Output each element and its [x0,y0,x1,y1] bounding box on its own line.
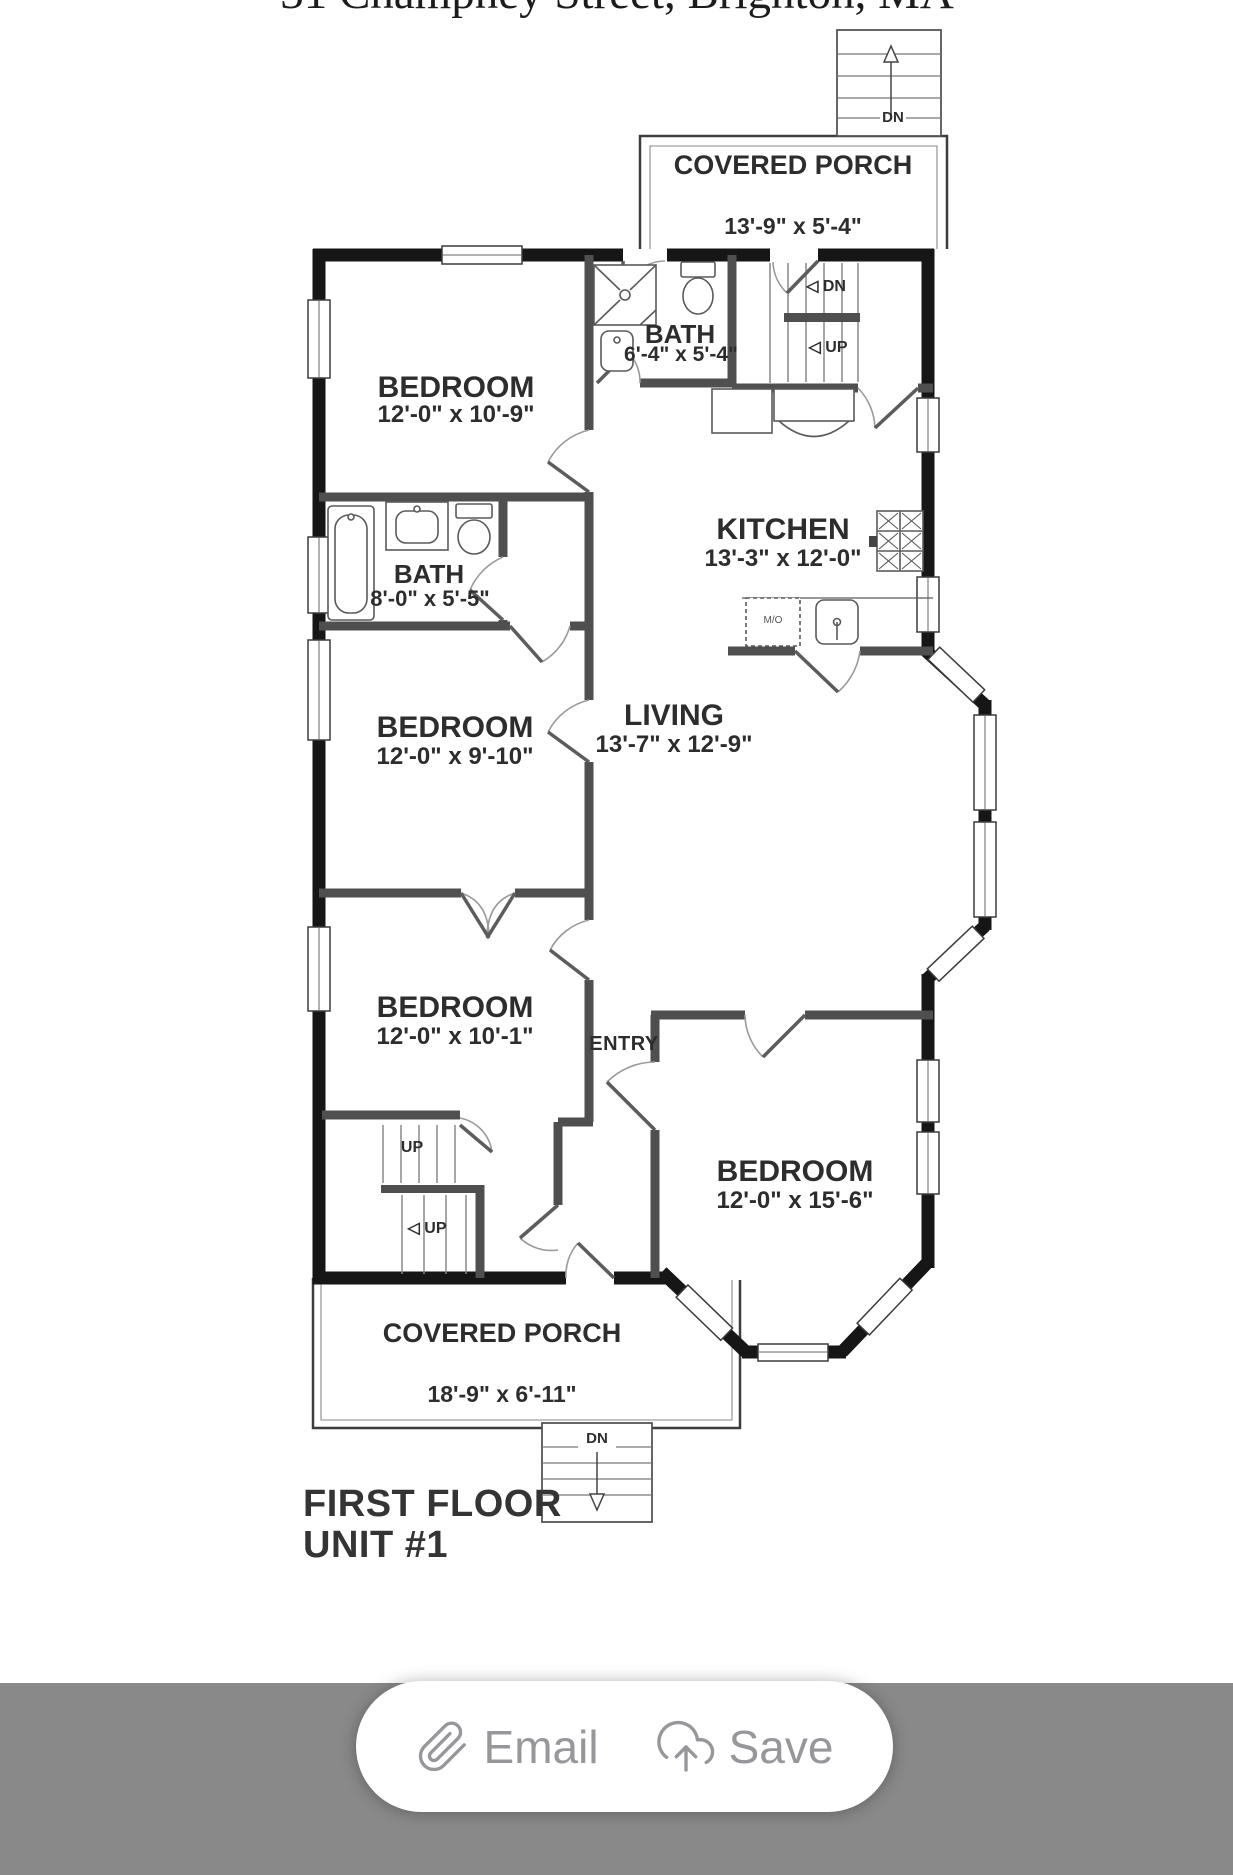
stair-label-bottom-dn: DN [586,1431,608,1447]
email-button[interactable]: Email [416,1720,599,1774]
room-label-living: LIVING [624,700,724,732]
stair-label-bottom-up-1: UP [401,1140,423,1157]
cloud-upload-icon [657,1718,715,1776]
room-dims-covered-porch-bottom: 18'-9" x 6'-11" [427,1382,576,1406]
stair-label-interior-up: ◁ UP [809,340,848,357]
room-label-bedroom-1: BEDROOM [378,372,535,404]
floor-title: FIRST FLOOR UNIT #1 [303,1484,562,1566]
stair-label-bottom-up-2: ◁ UP [408,1221,447,1238]
room-dims-bedroom-4: 12'-0" x 15'-6" [717,1188,874,1213]
room-dims-bath-left: 8'-0" x 5'-5" [370,587,489,610]
floor-title-line1: FIRST FLOOR [303,1484,562,1525]
room-dims-bedroom-3: 12'-0" x 10'-1" [377,1024,534,1049]
room-label-bedroom-4: BEDROOM [717,1156,874,1188]
floor-title-line2: UNIT #1 [303,1525,562,1566]
stair-label-interior-dn: ◁ DN [806,279,846,296]
room-label-bedroom-2: BEDROOM [377,712,534,744]
save-button-label: Save [729,1720,834,1774]
room-label-covered-porch-top: COVERED PORCH [668,150,918,180]
room-label-covered-porch-bottom: COVERED PORCH [377,1318,627,1348]
paperclip-icon [416,1720,470,1774]
action-pill: Email Save [356,1681,893,1812]
room-dims-kitchen: 13'-3" x 12'-0" [705,546,862,571]
room-dims-bedroom-1: 12'-0" x 10'-9" [378,402,535,427]
room-label-kitchen: KITCHEN [716,514,849,546]
room-dims-living: 13'-7" x 12'-9" [596,732,753,757]
screen: 31 Champney Street, Brighton, MA [0,0,1233,1875]
room-label-entry: ENTRY [589,1034,659,1055]
save-button[interactable]: Save [657,1718,834,1776]
room-label-bedroom-3: BEDROOM [377,992,534,1024]
room-dims-bedroom-2: 12'-0" x 9'-10" [377,744,534,769]
room-dims-bath-top: 6'-4" x 5'-4" [624,344,738,366]
room-label-bath-left: BATH [394,561,464,588]
room-dims-covered-porch-top: 13'-9" x 5'-4" [724,214,862,238]
email-button-label: Email [484,1720,599,1774]
stair-label-top-dn: DN [882,110,904,126]
bottom-interior-stair [383,1125,466,1274]
appliance-label-mo: M/O [764,616,783,627]
floor-plan-drawing [0,0,1233,1875]
